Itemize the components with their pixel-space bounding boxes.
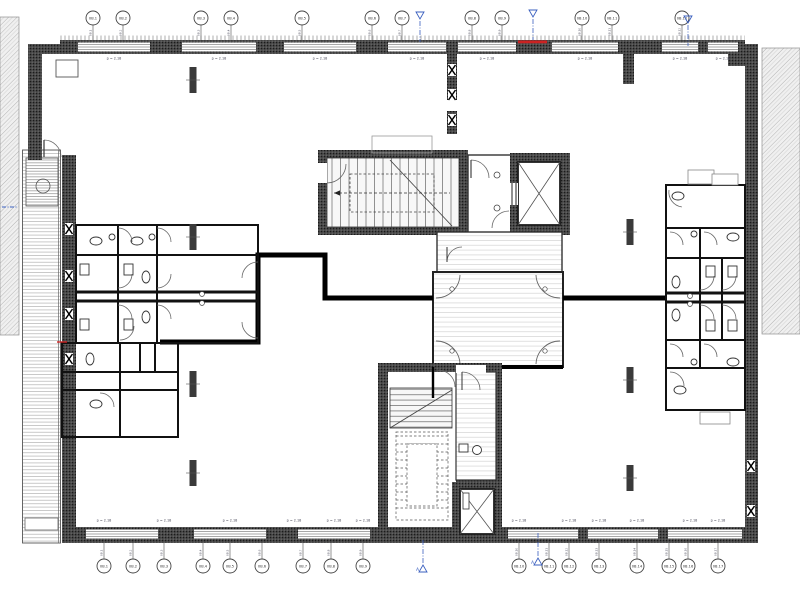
svg-text:0B.16: 0B.16 (683, 565, 694, 569)
column (186, 67, 200, 93)
window-dimension-label: p = 2.18 (97, 519, 112, 523)
svg-text:0B.3: 0B.3 (197, 17, 205, 21)
svg-text:0B.11: 0B.11 (608, 28, 612, 36)
svg-text:0B.6: 0B.6 (258, 549, 262, 556)
svg-text:0B.2: 0B.2 (119, 17, 127, 21)
svg-text:0B.7: 0B.7 (398, 17, 406, 21)
wall-stubs (447, 54, 634, 134)
wc-cluster-west (57, 225, 258, 437)
window (458, 43, 516, 52)
elevator-north (510, 153, 570, 235)
svg-text:0B.11: 0B.11 (607, 17, 617, 21)
svg-text:0B.4: 0B.4 (199, 565, 208, 569)
svg-text:0B.7: 0B.7 (299, 565, 307, 569)
demising-wall-west (160, 255, 433, 342)
elevator-door-opening (510, 183, 518, 205)
floor-drain (200, 301, 205, 306)
svg-text:0B.17: 0B.17 (713, 565, 723, 569)
svg-text:0B.1: 0B.1 (100, 565, 108, 569)
column (186, 371, 200, 397)
floor-plan-drawing: 0B.10B.10B.20B.20B.30B.30B.40B.40B.50B.5… (0, 0, 800, 600)
svg-text:0B.7: 0B.7 (398, 29, 402, 36)
window (86, 530, 158, 539)
window-dimension-label: p = 2.18 (356, 519, 371, 523)
svg-text:0B.9: 0B.9 (498, 29, 502, 36)
door-opening (456, 365, 486, 373)
window (668, 530, 742, 539)
svg-text:0B.1: 0B.1 (100, 549, 104, 556)
north-wall-insulation (60, 36, 745, 41)
floor-plan-canvas: 0B.10B.10B.20B.20B.30B.30B.40B.40B.50B.5… (0, 0, 800, 600)
window-dimension-label: p = 2.18 (630, 519, 645, 523)
elevator-lobby-north (468, 155, 514, 235)
window (552, 43, 618, 52)
svg-text:0B.5: 0B.5 (226, 565, 234, 569)
svg-text:0B.7: 0B.7 (299, 549, 303, 556)
svg-text:0B.5: 0B.5 (226, 549, 230, 556)
window (182, 43, 256, 52)
stair-core-north (318, 136, 468, 235)
column (623, 219, 637, 245)
svg-text:0B.6: 0B.6 (368, 17, 377, 21)
core-room-north (437, 232, 562, 272)
svg-text:0B.4: 0B.4 (227, 17, 236, 21)
window-dimension-label: p = 2.18 (107, 57, 122, 61)
window (388, 43, 446, 52)
svg-text:0B.10: 0B.10 (578, 28, 582, 36)
window-dimension-label: p = 2.18 (480, 57, 495, 61)
window (588, 530, 658, 539)
svg-text:0B.11: 0B.11 (545, 548, 549, 556)
stair-door-opening (318, 163, 327, 183)
svg-text:0B.12: 0B.12 (564, 565, 574, 569)
svg-text:0B.10: 0B.10 (514, 565, 525, 569)
floor-drain (688, 302, 693, 307)
window-dimension-label: p = 2.18 (711, 519, 726, 523)
svg-text:0B.3: 0B.3 (160, 565, 168, 569)
section-marker (534, 558, 542, 565)
window-dimension-label: p = 2.18 (223, 519, 238, 523)
section-marker (416, 12, 424, 19)
svg-text:0B.11: 0B.11 (544, 565, 554, 569)
svg-text:0B.13: 0B.13 (594, 565, 604, 569)
svg-text:0B.6: 0B.6 (368, 29, 372, 36)
column (186, 224, 200, 250)
svg-text:0B.1: 0B.1 (89, 17, 97, 21)
svg-text:0B.3: 0B.3 (160, 549, 164, 556)
window-dimension-label: p = 2.18 (683, 519, 698, 523)
stair-treads (327, 158, 459, 227)
svg-text:0B.10: 0B.10 (515, 548, 519, 556)
svg-text:0B.15: 0B.15 (665, 548, 669, 556)
window-dimension-label: p = 2.18 (327, 519, 342, 523)
window-dimension-label: p = 2.18 (157, 519, 172, 523)
floor-drain (200, 292, 205, 297)
grid-bubbles-bottom: 0B.10B.10B.20B.20B.30B.30B.40B.40B.50B.5… (97, 543, 725, 573)
svg-text:0B.12: 0B.12 (678, 28, 682, 36)
window-dimension-label: p = 2.18 (673, 57, 688, 61)
column (623, 465, 637, 491)
window (78, 43, 150, 52)
fire-escape-stair (26, 158, 58, 206)
floor-drain (473, 446, 482, 455)
window (708, 43, 738, 52)
column (623, 367, 637, 393)
svg-text:0B.8: 0B.8 (468, 29, 472, 36)
stair-core-south (378, 363, 502, 540)
window-dimension-label: p = 2.18 (410, 57, 425, 61)
svg-text:0B.16: 0B.16 (684, 548, 688, 556)
window (662, 43, 698, 52)
exterior-walkway-west (23, 150, 61, 543)
svg-text:0B.5: 0B.5 (298, 17, 306, 21)
window (284, 43, 356, 52)
svg-text:0B.12: 0B.12 (565, 548, 569, 556)
window-dimension-label: p = 2.18 (716, 57, 731, 61)
svg-text:0B.17: 0B.17 (714, 548, 718, 556)
svg-text:0B.2: 0B.2 (129, 565, 137, 569)
elevator-south (452, 482, 502, 540)
neighbor-hatch-east (762, 48, 800, 334)
column (186, 460, 200, 486)
svg-text:0B.14: 0B.14 (632, 565, 643, 569)
svg-text:0B.8: 0B.8 (327, 565, 336, 569)
section-marker (419, 565, 427, 572)
svg-text:0B.10: 0B.10 (577, 17, 588, 21)
section-marker (529, 10, 537, 17)
svg-text:0B.2: 0B.2 (119, 29, 123, 36)
window-dimension-label: p = 2.18 (578, 57, 593, 61)
window (298, 530, 370, 539)
neighbor-hatch-west (0, 17, 19, 335)
demising-walls (160, 255, 666, 367)
red-highlight-segment (518, 41, 547, 44)
window (194, 530, 266, 539)
window-dimension-label: p = 2.18 (287, 519, 302, 523)
svg-text:0B.15: 0B.15 (664, 565, 674, 569)
north-wall-stub (623, 54, 634, 84)
central-lobby (433, 272, 563, 367)
svg-text:0B.8: 0B.8 (468, 17, 477, 21)
svg-text:0B.4: 0B.4 (227, 29, 231, 36)
svg-text:0B.1: 0B.1 (89, 29, 93, 36)
svg-text:0B.5: 0B.5 (298, 29, 302, 36)
svg-text:0B.13: 0B.13 (595, 548, 599, 556)
sink (459, 444, 468, 452)
window-dimension-label: p = 2.18 (592, 519, 607, 523)
window-dimension-label: p = 2.18 (313, 57, 328, 61)
svg-text:0B.6: 0B.6 (258, 565, 267, 569)
svg-text:0B.2: 0B.2 (129, 549, 133, 556)
svg-text:0B.9: 0B.9 (359, 549, 363, 556)
wc-cluster-east (666, 170, 745, 424)
svg-text:0B.14: 0B.14 (633, 548, 637, 556)
svg-text:0B.9: 0B.9 (359, 565, 368, 569)
window-dimension-label: p = 2.18 (212, 57, 227, 61)
window (508, 530, 578, 539)
svg-text:0B.8: 0B.8 (327, 549, 331, 556)
sink (691, 231, 737, 365)
window-dimension-label: p = 2.18 (512, 519, 527, 523)
svg-text:0B.3: 0B.3 (197, 29, 201, 36)
svg-text:0B.9: 0B.9 (498, 17, 507, 21)
floor-drain (688, 294, 693, 299)
window-dimension-label: p = 2.18 (562, 519, 577, 523)
svg-text:0B.4: 0B.4 (199, 549, 203, 556)
northwest-wall (28, 44, 42, 160)
